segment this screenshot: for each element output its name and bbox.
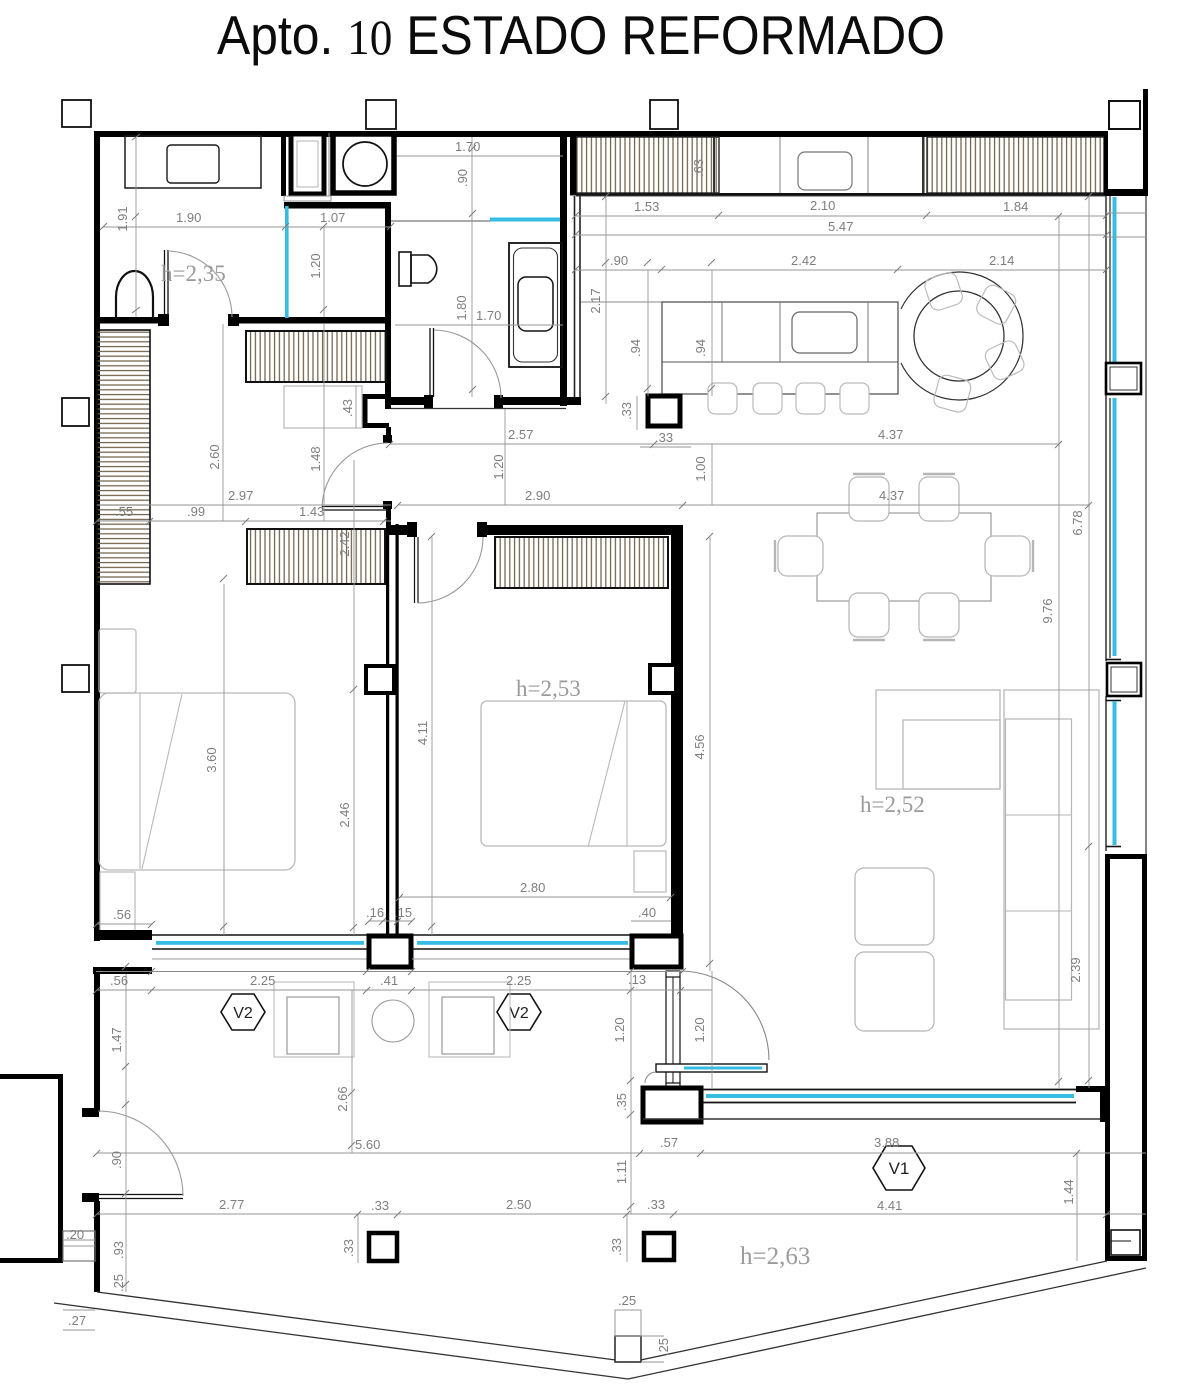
svg-text:.16: .16 <box>366 905 384 920</box>
svg-text:h=2,35: h=2,35 <box>161 261 226 286</box>
svg-text:3.88: 3.88 <box>874 1135 899 1150</box>
svg-text:4.37: 4.37 <box>878 427 903 442</box>
svg-text:1.91: 1.91 <box>115 206 130 231</box>
svg-text:2.42: 2.42 <box>337 531 352 556</box>
svg-text:2.17: 2.17 <box>588 288 603 313</box>
svg-text:1.47: 1.47 <box>109 1027 124 1052</box>
svg-text:1.84: 1.84 <box>1003 199 1028 214</box>
svg-text:.55: .55 <box>115 504 133 519</box>
svg-text:1.90: 1.90 <box>176 210 201 225</box>
svg-text:1.43: 1.43 <box>299 504 324 519</box>
svg-text:2.39: 2.39 <box>1068 957 1083 982</box>
svg-text:.41: .41 <box>380 973 398 988</box>
svg-text:4.56: 4.56 <box>692 734 707 759</box>
svg-text:.33: .33 <box>655 430 673 445</box>
svg-text:6.78: 6.78 <box>1070 510 1085 535</box>
svg-text:h=2,53: h=2,53 <box>516 676 581 701</box>
svg-text:.25: .25 <box>618 1293 636 1308</box>
svg-text:.33: .33 <box>371 1198 389 1213</box>
svg-text:2.50: 2.50 <box>506 1197 531 1212</box>
svg-text:Apto. 10 ESTADO REFORMADO: Apto. 10 ESTADO REFORMADO <box>217 4 945 66</box>
svg-text:h=2,63: h=2,63 <box>740 1243 810 1270</box>
svg-text:4.37: 4.37 <box>879 488 904 503</box>
svg-text:5.47: 5.47 <box>828 219 853 234</box>
svg-text:.40: .40 <box>638 905 656 920</box>
svg-text:.35: .35 <box>614 1093 629 1111</box>
svg-text:.33: .33 <box>647 1197 665 1212</box>
svg-text:.57: .57 <box>660 1135 678 1150</box>
svg-text:1.20: 1.20 <box>308 253 323 278</box>
svg-text:V2: V2 <box>233 1005 253 1022</box>
svg-text:2.60: 2.60 <box>207 444 222 469</box>
svg-text:5.60: 5.60 <box>355 1137 380 1152</box>
svg-text:h=2,52: h=2,52 <box>860 792 925 817</box>
svg-text:2.57: 2.57 <box>508 427 533 442</box>
svg-text:2.25: 2.25 <box>506 973 531 988</box>
svg-text:.99: .99 <box>187 504 205 519</box>
svg-text:1.70: 1.70 <box>476 308 501 323</box>
svg-text:.20: .20 <box>66 1227 84 1242</box>
svg-text:V2: V2 <box>509 1005 529 1022</box>
svg-text:.90: .90 <box>610 253 628 268</box>
svg-text:2.42: 2.42 <box>791 253 816 268</box>
svg-text:.33: .33 <box>619 402 634 420</box>
svg-text:.15: .15 <box>394 905 412 920</box>
svg-text:.27: .27 <box>68 1313 86 1328</box>
svg-text:3.60: 3.60 <box>204 747 219 772</box>
svg-text:1.80: 1.80 <box>454 295 469 320</box>
svg-text:V1: V1 <box>889 1159 910 1178</box>
svg-text:2.66: 2.66 <box>335 1086 350 1111</box>
svg-text:2.46: 2.46 <box>337 802 352 827</box>
svg-text:.56: .56 <box>110 973 128 988</box>
svg-text:1.48: 1.48 <box>308 446 323 471</box>
svg-text:1.20: 1.20 <box>692 1017 707 1042</box>
svg-text:2.25: 2.25 <box>250 973 275 988</box>
svg-text:4.11: 4.11 <box>415 721 430 745</box>
svg-text:1.20: 1.20 <box>491 454 506 479</box>
svg-text:.63: .63 <box>691 159 706 177</box>
svg-text:.33: .33 <box>341 1239 356 1257</box>
svg-text:.94: .94 <box>693 339 708 357</box>
svg-text:1.20: 1.20 <box>612 1017 627 1042</box>
svg-text:.43: .43 <box>340 399 355 417</box>
svg-text:2.77: 2.77 <box>219 1197 244 1212</box>
svg-text:.25: .25 <box>111 1274 126 1292</box>
svg-text:1.44: 1.44 <box>1061 1179 1076 1204</box>
svg-text:1.70: 1.70 <box>455 139 480 154</box>
svg-text:.25: .25 <box>656 1338 671 1356</box>
svg-text:.90: .90 <box>109 1151 124 1169</box>
svg-text:2.14: 2.14 <box>989 253 1014 268</box>
svg-text:.94: .94 <box>628 339 643 357</box>
svg-text:1.53: 1.53 <box>634 199 659 214</box>
svg-text:.93: .93 <box>111 1241 126 1259</box>
svg-text:9.76: 9.76 <box>1040 598 1055 623</box>
svg-text:1.07: 1.07 <box>320 210 345 225</box>
svg-text:2.90: 2.90 <box>525 488 550 503</box>
svg-text:.56: .56 <box>113 907 131 922</box>
svg-text:.90: .90 <box>455 169 470 187</box>
svg-text:4.41: 4.41 <box>877 1198 902 1213</box>
svg-text:.13: .13 <box>628 972 646 987</box>
svg-text:2.80: 2.80 <box>520 880 545 895</box>
svg-text:.33: .33 <box>609 1238 624 1256</box>
svg-text:1.11: 1.11 <box>614 1160 629 1184</box>
svg-text:2.97: 2.97 <box>228 488 253 503</box>
svg-text:1.00: 1.00 <box>693 456 708 481</box>
svg-text:2.10: 2.10 <box>810 198 835 213</box>
